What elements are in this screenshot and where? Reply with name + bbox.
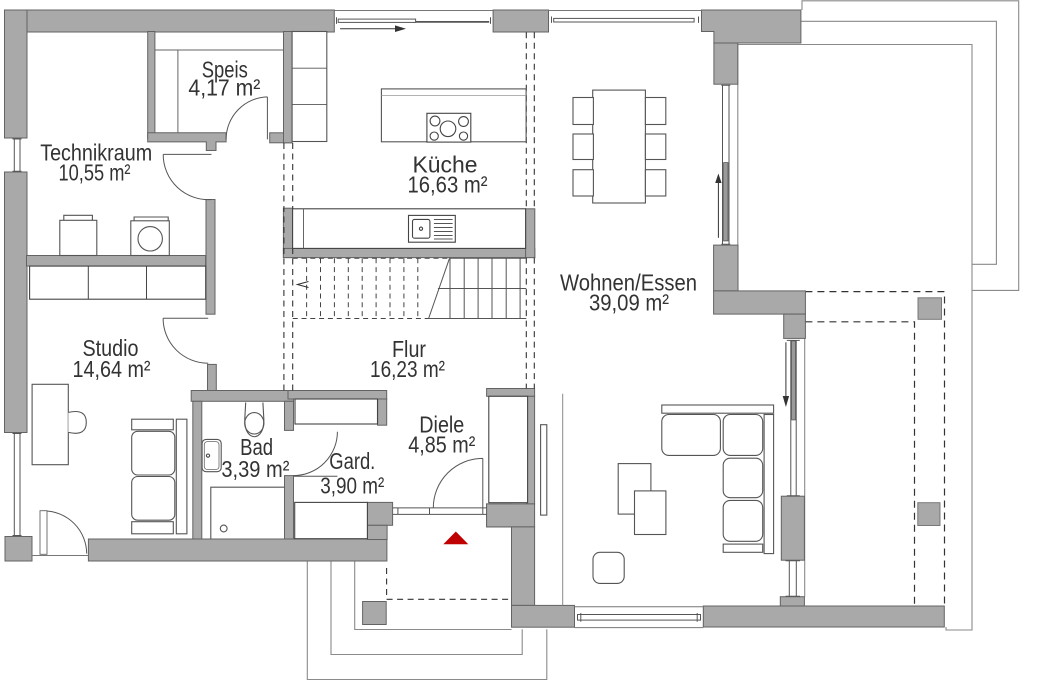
svg-text:4,85 m²: 4,85 m² xyxy=(408,432,475,458)
svg-text:4,17 m²: 4,17 m² xyxy=(188,75,260,101)
svg-text:39,09 m²: 39,09 m² xyxy=(589,290,669,316)
svg-text:16,23 m²: 16,23 m² xyxy=(370,356,445,382)
svg-text:14,64 m²: 14,64 m² xyxy=(73,356,151,382)
svg-text:16,63 m²: 16,63 m² xyxy=(408,172,488,198)
svg-text:10,55 m²: 10,55 m² xyxy=(59,160,131,186)
svg-text:3,90 m²: 3,90 m² xyxy=(320,473,384,499)
svg-text:3,39 m²: 3,39 m² xyxy=(221,456,289,482)
svg-text:Gard.: Gard. xyxy=(329,448,375,474)
